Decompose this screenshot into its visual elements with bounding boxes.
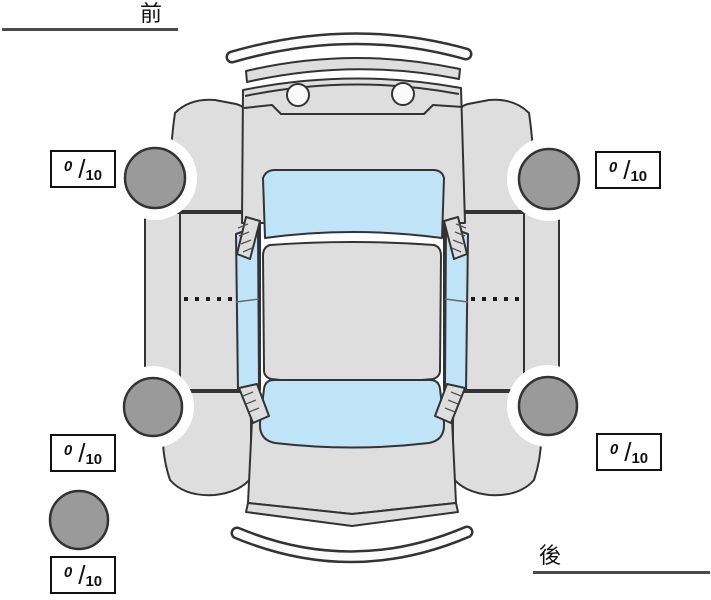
score-max: 10 (85, 573, 102, 590)
rear-label-underline (533, 571, 710, 574)
front-label-underline (2, 28, 178, 31)
left-headlight (287, 84, 309, 106)
score-separator: / (78, 438, 85, 469)
score-separator: / (624, 437, 631, 468)
rear-label: 後 (539, 546, 561, 568)
score-max: 10 (85, 167, 102, 184)
spare-tire (50, 491, 108, 549)
score-box-spare: 0 / 10 (50, 556, 116, 594)
score-max: 10 (630, 168, 647, 185)
score-box-front-left: 0 / 10 (50, 150, 116, 188)
rear-bumper (237, 532, 467, 557)
front-bumper (232, 39, 466, 82)
rear-right-tire (519, 377, 577, 435)
score-value: 0 (64, 442, 72, 459)
roof (263, 242, 441, 384)
score-value: 0 (609, 159, 617, 176)
rear-window (260, 380, 444, 448)
score-box-front-right: 0 / 10 (595, 151, 661, 189)
score-value: 0 (64, 564, 72, 581)
score-max: 10 (631, 450, 648, 467)
score-box-rear-left: 0 / 10 (50, 434, 116, 472)
right-headlight (392, 83, 414, 105)
score-separator: / (623, 155, 630, 186)
score-value: 0 (610, 441, 618, 458)
score-max: 10 (85, 451, 102, 468)
front-label: 前 (140, 4, 162, 26)
score-box-rear-right: 0 / 10 (596, 433, 662, 471)
score-separator: / (78, 560, 85, 591)
front-left-tire (125, 148, 185, 208)
rear-left-tire (124, 378, 182, 436)
score-value: 0 (64, 158, 72, 175)
car-top-view-diagram (0, 0, 711, 600)
front-right-tire (519, 149, 579, 209)
car-condition-diagram: 前 後 0 / 10 0 / 10 0 / 10 0 / 10 0 / 10 (0, 0, 711, 600)
score-separator: / (78, 154, 85, 185)
windshield (263, 170, 444, 238)
